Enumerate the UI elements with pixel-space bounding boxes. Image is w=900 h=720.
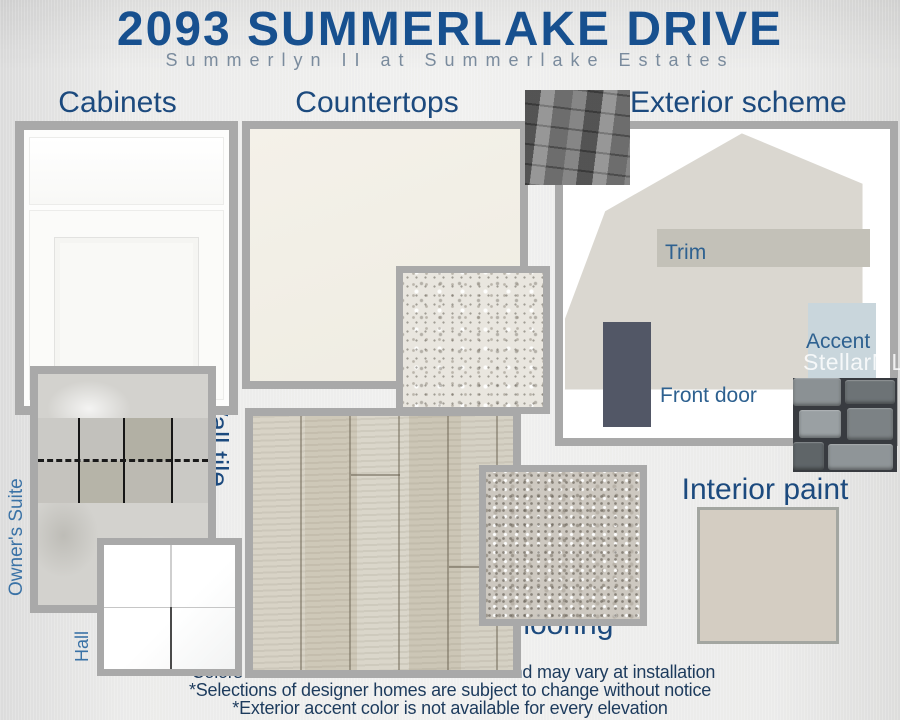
front-door-swatch <box>603 322 651 427</box>
countertops-label: Countertops <box>242 86 512 120</box>
mosaic-dashed-line <box>38 459 208 462</box>
front-door-label: Front door <box>660 384 757 408</box>
plank-joint <box>351 474 400 476</box>
hall-tile-sample <box>97 538 242 676</box>
mosaic-tile <box>38 418 80 461</box>
mosaic-tile <box>80 418 125 461</box>
mosaic-tile <box>80 461 125 504</box>
page-subtitle: Summerlyn II at Summerlake Estates <box>0 50 900 71</box>
stone-block <box>845 380 895 404</box>
mosaic-tile <box>173 418 208 461</box>
stone-accent-sample <box>793 378 897 472</box>
stone-block <box>847 408 893 440</box>
stone-block <box>793 442 824 470</box>
carpet-flooring-sample <box>479 465 647 626</box>
exterior-scheme-label: Exterior scheme <box>630 86 847 120</box>
hall-label: Hall <box>72 612 93 662</box>
interior-paint-label: Interior paint <box>660 473 870 507</box>
stellar-mls-watermark: StellarMLS <box>803 349 900 376</box>
stone-block <box>793 378 841 406</box>
cabinets-label: Cabinets <box>0 86 235 120</box>
page-title: 2093 SUMMERLAKE DRIVE <box>0 2 900 57</box>
footnote-line: *Exterior accent color is not available … <box>0 699 900 717</box>
footnote-line: *Selections of designer homes are subjec… <box>0 681 900 699</box>
trim-swatch: Trim <box>657 229 870 267</box>
stone-block <box>828 444 892 470</box>
mosaic-tile <box>125 461 172 504</box>
mosaic-tile <box>38 461 80 504</box>
cabinet-door-inset-panel <box>54 237 199 373</box>
trim-label: Trim <box>665 241 706 265</box>
cabinet-drawer-front <box>29 137 224 205</box>
stone-block <box>799 410 841 438</box>
interior-paint-swatch <box>697 507 839 644</box>
roof-shingle-sample <box>525 90 630 185</box>
design-board: { "header": { "title": "2093 SUMMERLAKE … <box>0 0 900 720</box>
owners-suite-label: Owner's Suite <box>6 460 28 596</box>
bathroom-countertop-sample <box>396 266 550 414</box>
mosaic-tile <box>125 418 172 461</box>
mosaic-tile <box>173 461 208 504</box>
